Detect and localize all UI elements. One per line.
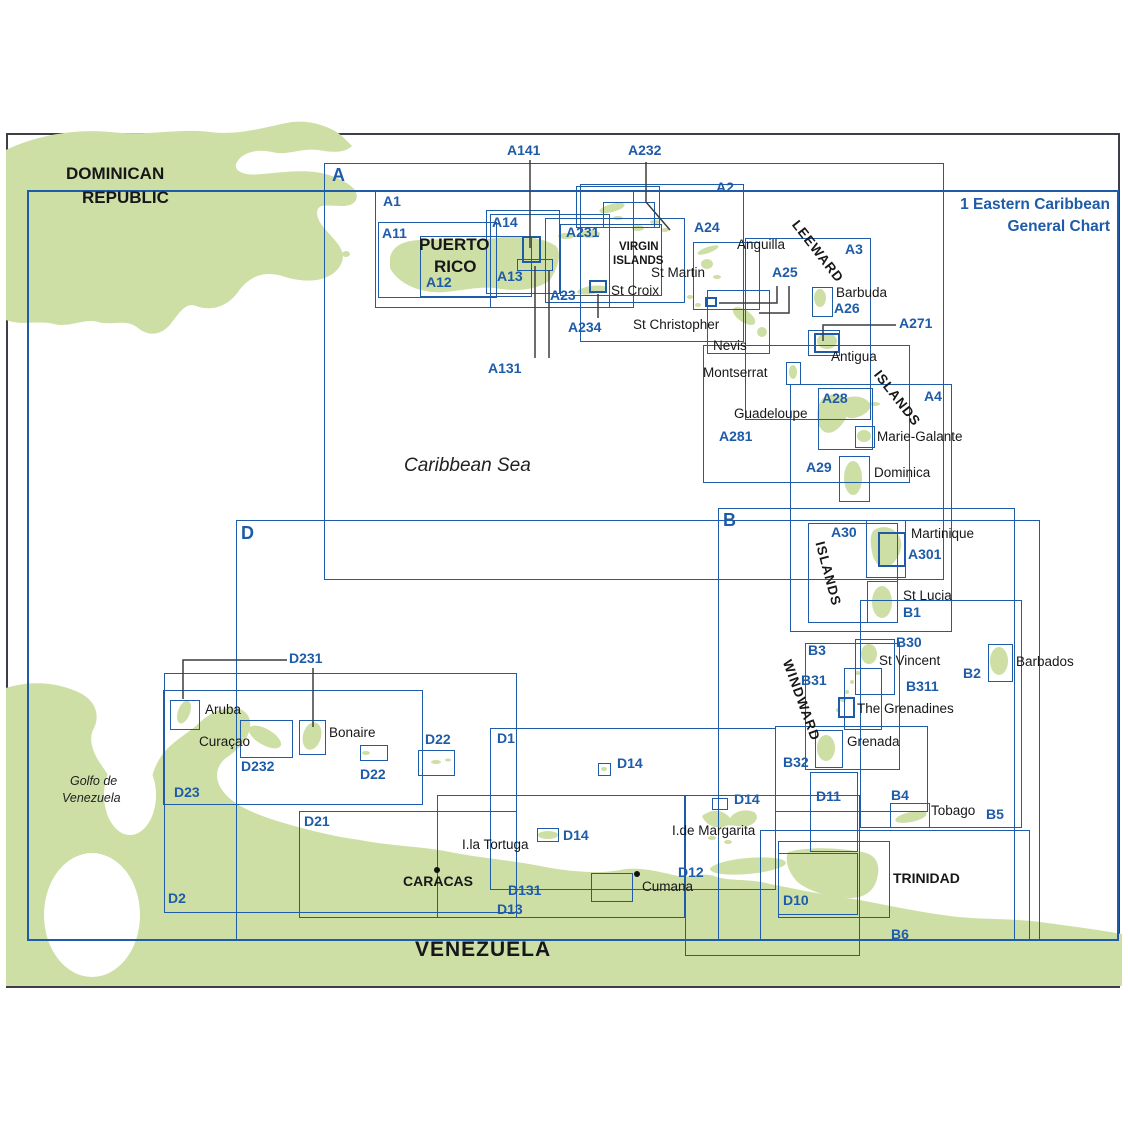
general-chart-title-line2: General Chart bbox=[880, 216, 1110, 238]
general-chart-title: 1 Eastern Caribbean General Chart bbox=[880, 194, 1110, 237]
leader-lines-layer bbox=[0, 0, 1128, 1128]
leader-A25b bbox=[759, 286, 789, 313]
leader-A232 bbox=[646, 162, 670, 230]
leader-A271 bbox=[823, 325, 896, 341]
chart-index-page: ABDA1A11A12A13A14A141A232A231A23A234A131… bbox=[0, 0, 1128, 1128]
dot-caracas bbox=[434, 867, 440, 873]
leader-D231a bbox=[183, 660, 287, 699]
leader-A25a bbox=[719, 286, 777, 303]
dot-cumana bbox=[634, 871, 640, 877]
general-chart-title-line1: 1 Eastern Caribbean bbox=[880, 194, 1110, 216]
